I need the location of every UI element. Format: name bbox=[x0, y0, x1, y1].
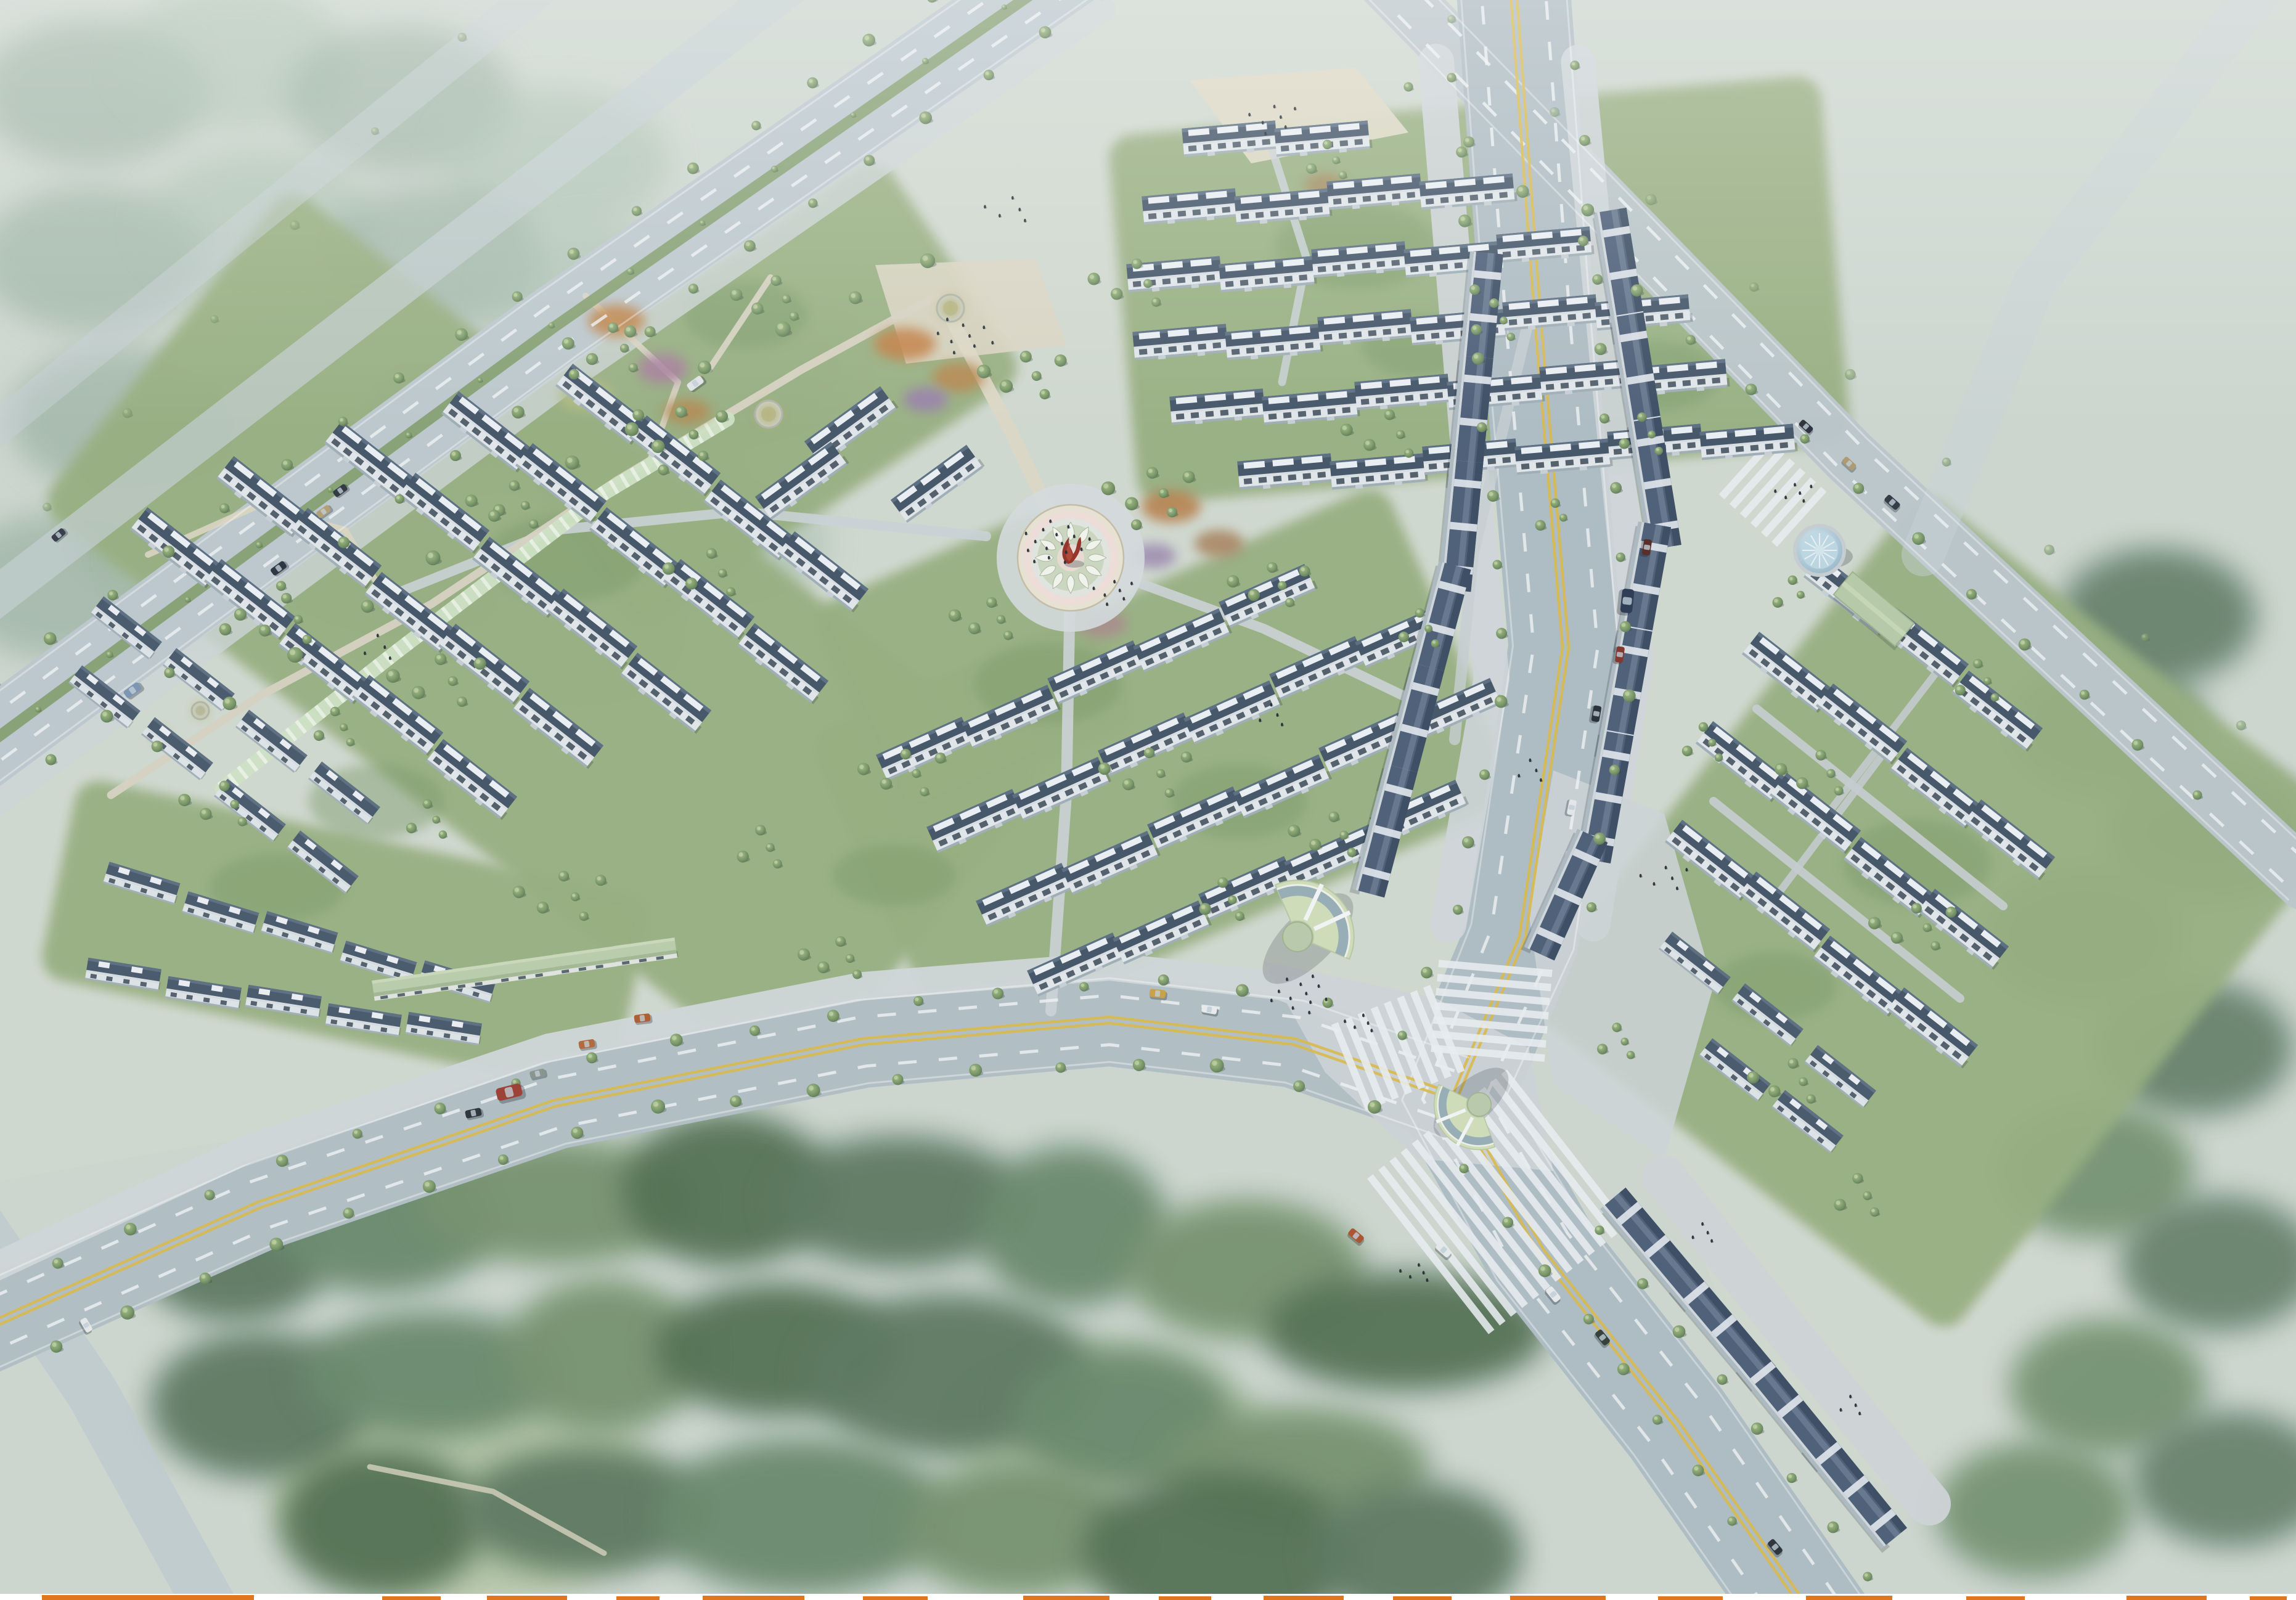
watermark-strip bbox=[0, 1594, 2296, 1600]
top-haze bbox=[0, 0, 2296, 431]
watermark-text-fragment bbox=[1966, 1596, 2025, 1600]
central-plaza bbox=[997, 484, 1145, 632]
aerial-rendering bbox=[0, 0, 2296, 1600]
watermark-text-fragment bbox=[1023, 1596, 1109, 1600]
watermark-text-fragment bbox=[1510, 1596, 1606, 1600]
watermark-text-fragment bbox=[2126, 1596, 2207, 1600]
rendering-canvas bbox=[0, 0, 2296, 1600]
lawn-patch bbox=[832, 844, 955, 906]
flower-bed bbox=[1142, 491, 1201, 523]
flower-bed bbox=[1195, 530, 1244, 557]
watermark-text-fragment bbox=[1806, 1596, 1892, 1600]
watermark-text-fragment bbox=[1159, 1596, 1211, 1600]
watermark-text-fragment bbox=[863, 1596, 928, 1600]
watermark-text-fragment bbox=[616, 1596, 660, 1600]
watermark-text-fragment bbox=[703, 1596, 804, 1600]
forest-patch bbox=[1935, 1442, 2133, 1578]
watermark-text-fragment bbox=[1393, 1596, 1452, 1600]
vehicle bbox=[634, 1013, 653, 1026]
watermark-text-fragment bbox=[487, 1596, 567, 1600]
circular-tree-planter bbox=[192, 702, 209, 719]
watermark-text-fragment bbox=[382, 1596, 441, 1600]
watermark-text-fragment bbox=[1264, 1596, 1344, 1600]
watermark-text-fragment bbox=[1658, 1596, 1723, 1600]
watermark-text-fragment bbox=[2250, 1596, 2287, 1600]
